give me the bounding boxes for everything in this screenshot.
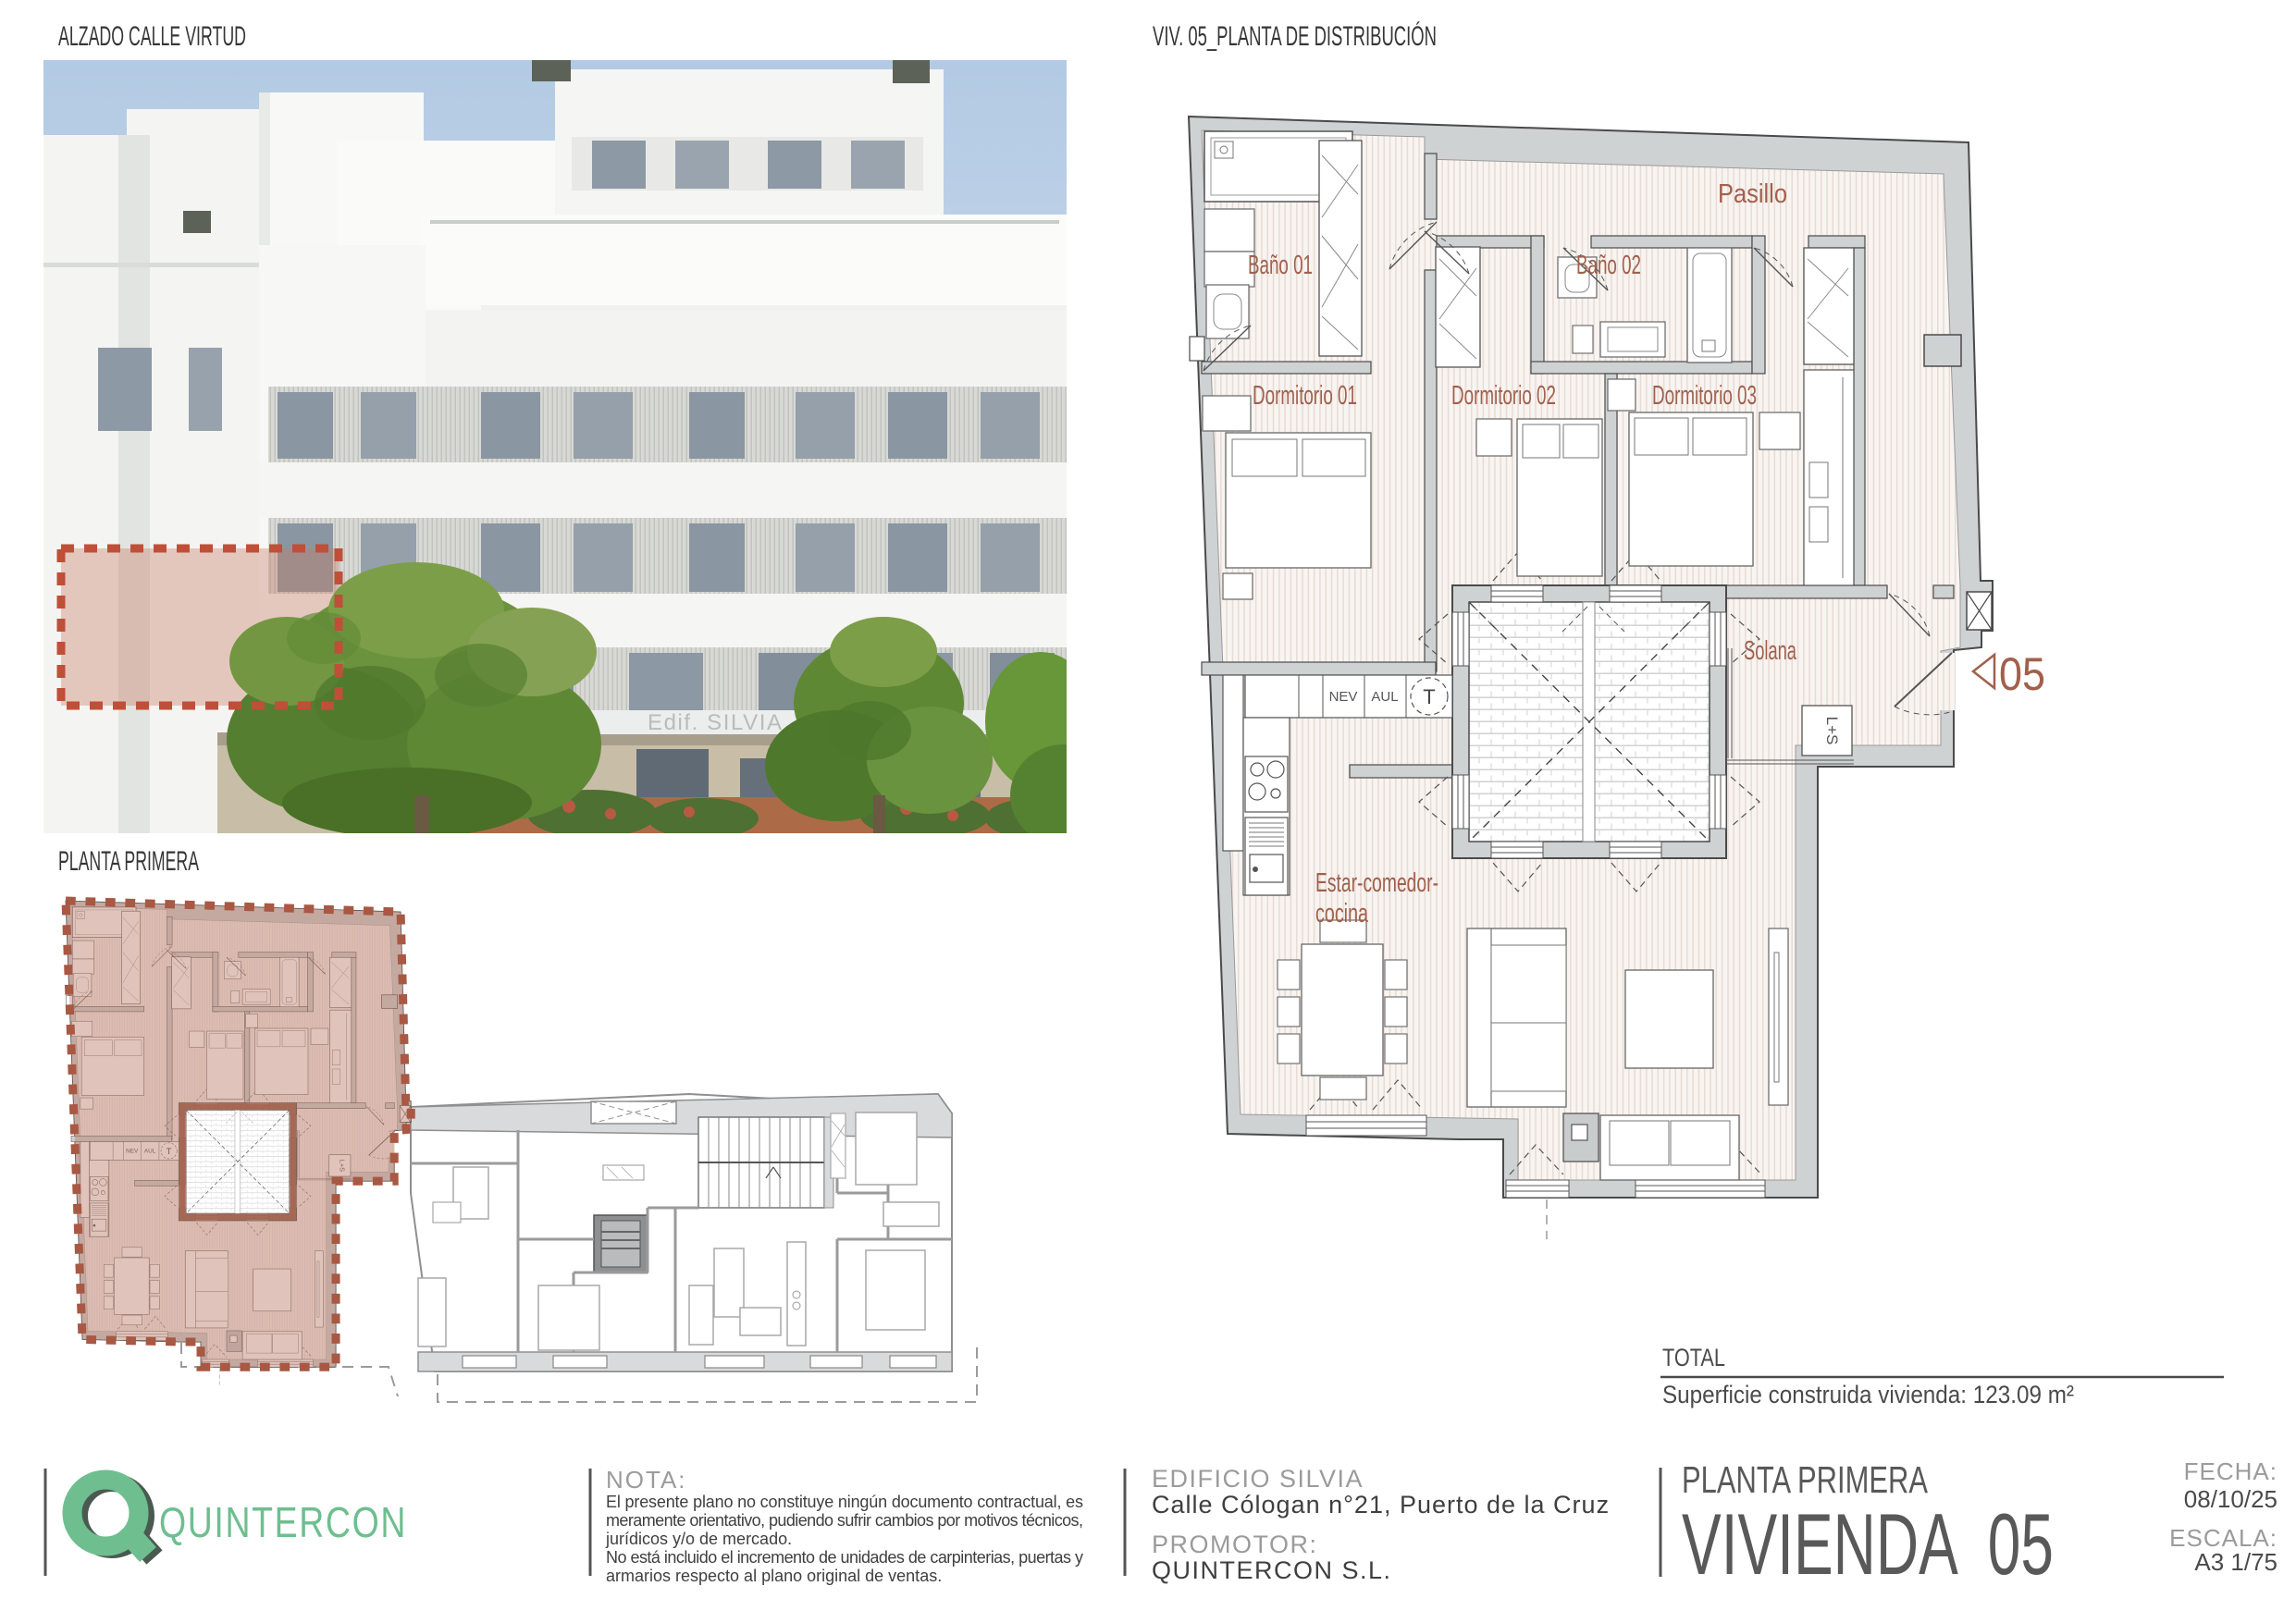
svg-text:TOTAL: TOTAL	[1662, 1344, 1725, 1371]
svg-text:05: 05	[1999, 648, 2045, 700]
svg-text:No está incluido el incremento: No está incluido el incremento de unidad…	[606, 1548, 1083, 1567]
svg-text:ALZADO CALLE VIRTUD: ALZADO CALLE VIRTUD	[58, 21, 246, 52]
svg-text:AUL: AUL	[1371, 689, 1398, 705]
svg-text:Dormitorio 01: Dormitorio 01	[1253, 381, 1357, 411]
svg-text:NEV: NEV	[1329, 689, 1358, 705]
svg-text:Calle Cólogan n°21, Puerto de: Calle Cólogan n°21, Puerto de la Cruz	[1152, 1491, 1610, 1518]
svg-text:T: T	[1423, 685, 1435, 708]
svg-text:PLANTA PRIMERA: PLANTA PRIMERA	[58, 846, 199, 877]
svg-text:L+S: L+S	[1823, 717, 1841, 745]
svg-text:PROMOTOR:: PROMOTOR:	[1152, 1531, 1318, 1558]
svg-text:EDIFICIO SILVIA: EDIFICIO SILVIA	[1152, 1465, 1364, 1493]
svg-text:El presente plano no constituy: El presente plano no constituye ningún d…	[606, 1493, 1083, 1511]
svg-text:Superficie construida vivienda: Superficie construida vivienda: 123.09 m…	[1662, 1381, 2074, 1408]
svg-text:QUINTERCON: QUINTERCON	[159, 1498, 407, 1546]
svg-text:Edif. SILVIA: Edif. SILVIA	[648, 710, 782, 735]
svg-text:VIVIENDA 05: VIVIENDA 05	[1682, 1495, 2054, 1592]
svg-text:NOTA:: NOTA:	[606, 1466, 687, 1494]
svg-text:Estar-comedor-: Estar-comedor-	[1315, 868, 1438, 898]
svg-text:Dormitorio 02: Dormitorio 02	[1451, 381, 1556, 411]
svg-text:Solana: Solana	[1744, 636, 1797, 666]
svg-text:Pasillo: Pasillo	[1718, 179, 1787, 209]
svg-text:A3 1/75: A3 1/75	[2194, 1548, 2277, 1576]
svg-text:jurídicos y/o de mercado.: jurídicos y/o de mercado.	[605, 1530, 792, 1548]
svg-text:08/10/25: 08/10/25	[2184, 1485, 2277, 1513]
svg-text:Baño 01: Baño 01	[1248, 251, 1313, 280]
svg-text:VIV. 05_PLANTA DE DISTRIBUCIÓN: VIV. 05_PLANTA DE DISTRIBUCIÓN	[1153, 21, 1437, 52]
svg-text:FECHA:: FECHA:	[2184, 1457, 2277, 1485]
svg-text:armarios respecto al plano ori: armarios respecto al plano original de v…	[606, 1567, 942, 1585]
svg-text:Baño 02: Baño 02	[1576, 251, 1641, 280]
svg-text:Dormitorio 03: Dormitorio 03	[1652, 381, 1757, 411]
svg-text:QUINTERCON S.L.: QUINTERCON S.L.	[1152, 1556, 1392, 1584]
svg-text:cocina: cocina	[1315, 899, 1369, 928]
svg-text:meramente orientativo, pudiend: meramente orientativo, pudiendo sufrir c…	[606, 1511, 1083, 1530]
